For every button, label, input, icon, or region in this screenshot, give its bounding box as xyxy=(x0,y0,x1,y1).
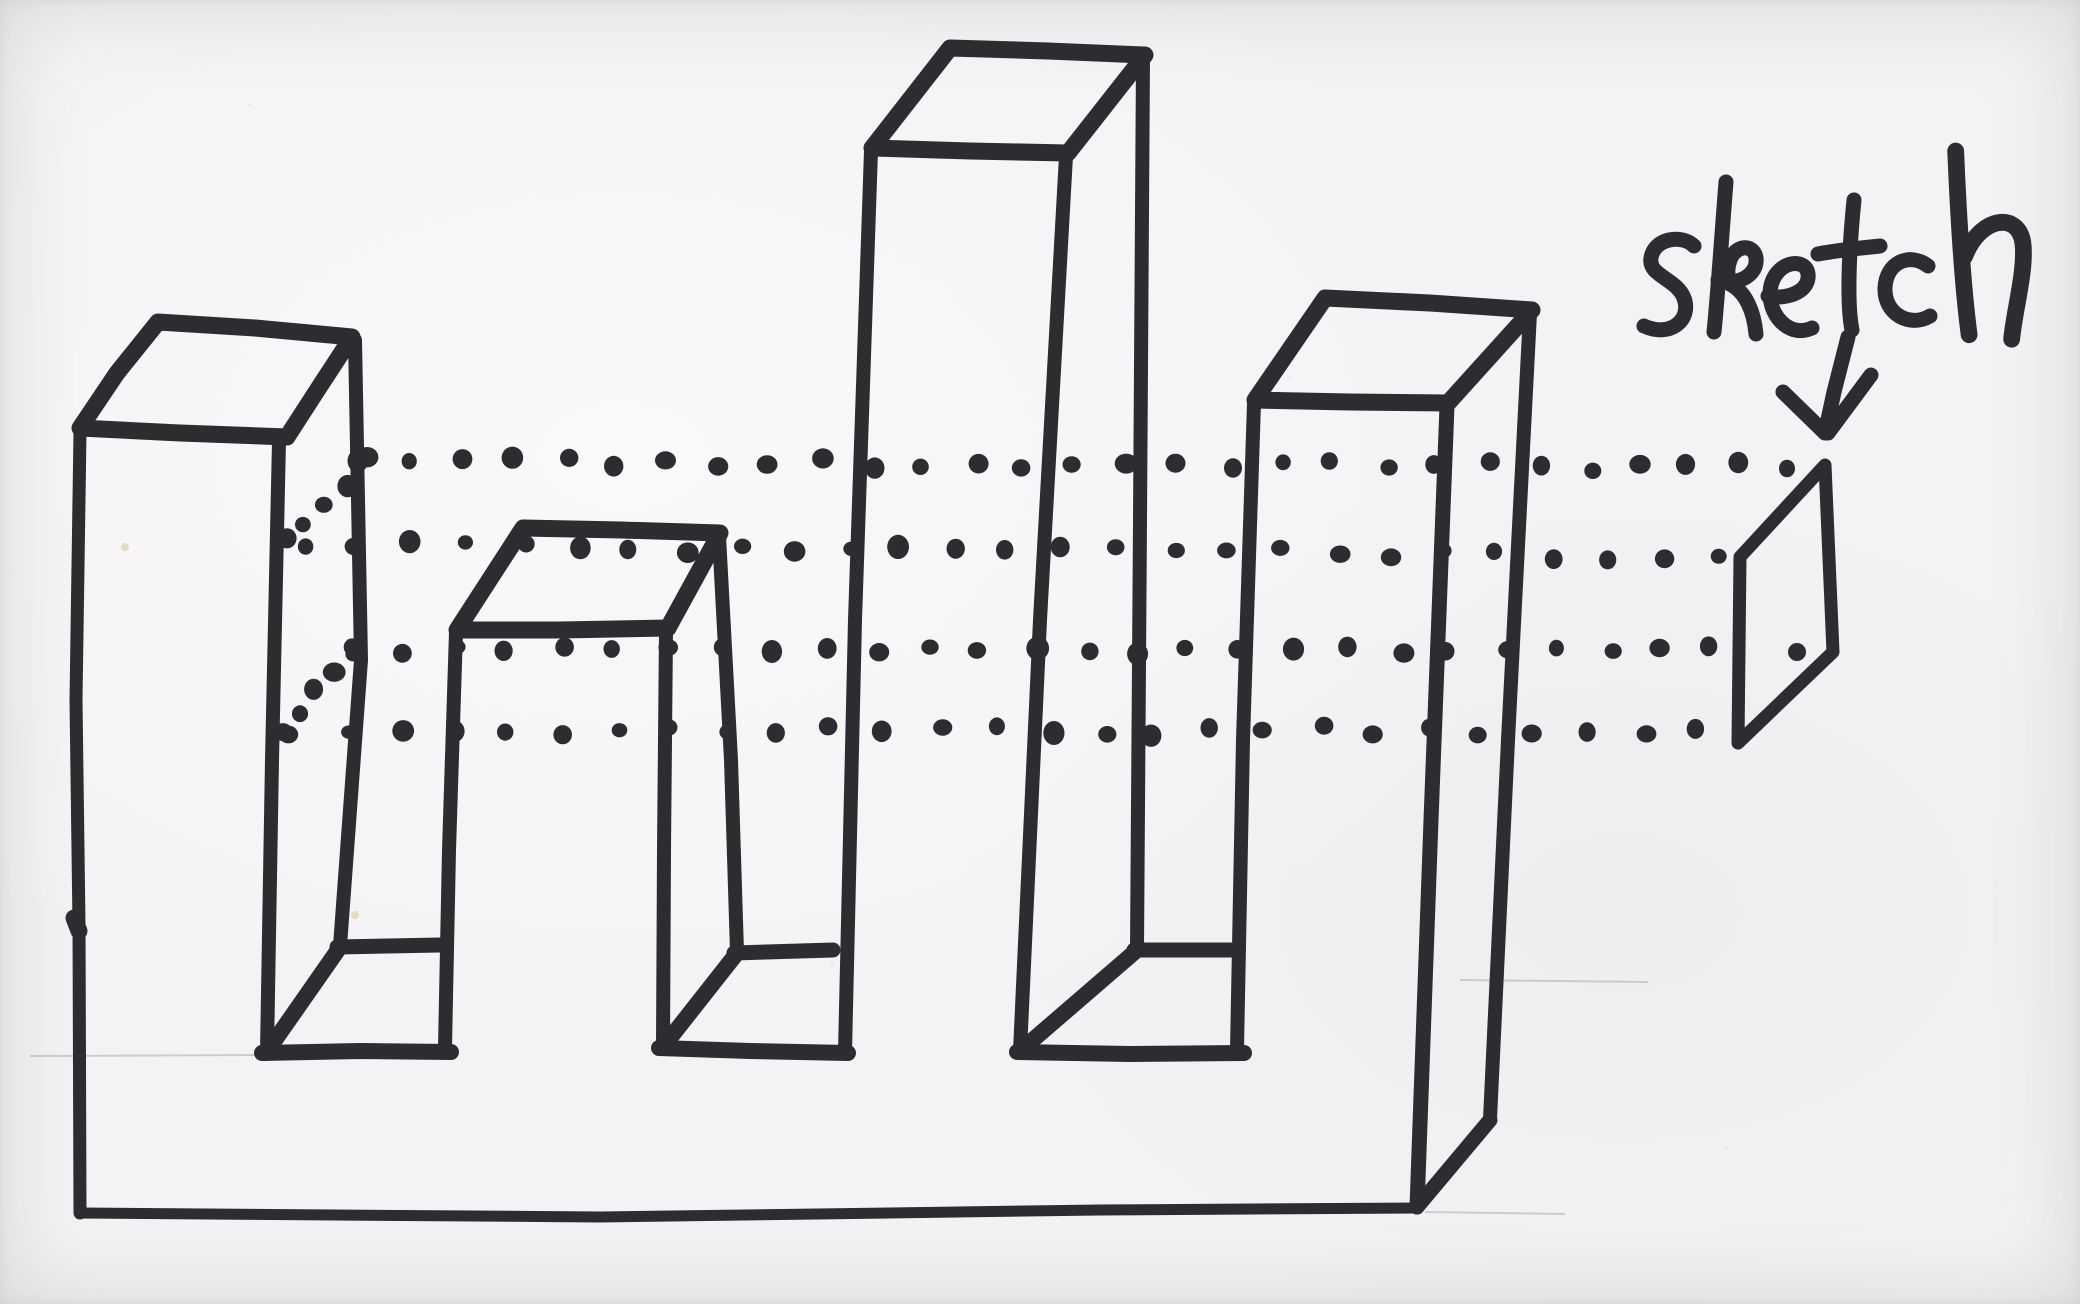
projection-dot xyxy=(677,542,699,563)
projection-dot xyxy=(969,454,989,474)
projection-dot xyxy=(1217,543,1236,559)
projection-dot xyxy=(658,639,678,656)
projection-dot xyxy=(767,723,785,743)
projection-dot xyxy=(1629,455,1650,474)
label-letter-k xyxy=(1714,182,1756,334)
projection-dot xyxy=(947,539,965,559)
label-letter-h xyxy=(1956,151,2024,339)
projection-dot xyxy=(989,717,1005,735)
projection-dot xyxy=(1363,725,1383,743)
projection-dot xyxy=(1166,454,1186,473)
projection-dot xyxy=(1315,717,1334,735)
projection-dot xyxy=(1283,638,1304,661)
projection-dot xyxy=(912,459,929,475)
projection-dot xyxy=(784,541,806,562)
projection-dot xyxy=(604,456,623,477)
projection-dot xyxy=(570,537,591,560)
projection-dot xyxy=(453,449,473,469)
projection-dot xyxy=(1321,452,1338,470)
projection-dot xyxy=(819,717,838,735)
projection-dot xyxy=(719,724,735,739)
projection-dot xyxy=(1115,454,1138,474)
projection-dot xyxy=(1051,537,1070,558)
projection-dot xyxy=(495,641,513,661)
projection-dot xyxy=(1141,725,1162,747)
projection-dot xyxy=(1330,546,1351,563)
pencil-guide-2 xyxy=(1425,1212,1565,1214)
sketch-profile-face xyxy=(1738,465,1833,743)
projection-dot xyxy=(392,720,414,742)
projection-dot xyxy=(887,535,909,559)
letter-stroke xyxy=(1768,264,1812,331)
valley-2-floor-back-edge xyxy=(734,950,833,953)
marker-strokes xyxy=(74,48,1871,1217)
letter-stroke xyxy=(1730,284,1756,334)
tower-1-front-right-edge xyxy=(267,441,279,1052)
tower-1-top-face xyxy=(80,322,352,437)
projection-dot xyxy=(1176,640,1193,656)
projection-dot xyxy=(762,640,782,663)
projection-dot xyxy=(1425,455,1442,474)
projection-dot xyxy=(604,640,620,658)
pencil-guide-1 xyxy=(30,1055,255,1056)
projection-dot xyxy=(1127,642,1148,665)
projection-dot xyxy=(1649,639,1669,657)
projection-dot xyxy=(1584,463,1601,479)
sketch-label xyxy=(1644,151,2023,339)
projection-dot xyxy=(1380,459,1397,475)
projection-dot xyxy=(1201,718,1218,738)
letter-stroke xyxy=(1644,239,1694,330)
projection-dot xyxy=(757,455,778,474)
projection-dot xyxy=(1026,637,1049,660)
projection-dot xyxy=(1599,550,1616,569)
tower-4-back-right-edge xyxy=(1490,313,1530,1119)
projection-dot xyxy=(619,540,636,560)
projection-dot xyxy=(933,719,952,735)
projection-dot xyxy=(1098,726,1116,743)
projection-dot xyxy=(553,725,572,744)
projection-dot xyxy=(1676,454,1695,475)
projection-dot xyxy=(295,517,311,532)
valley-3-floor-front-edge xyxy=(1017,1052,1244,1054)
paper-speck xyxy=(351,911,359,919)
projection-dot xyxy=(1107,539,1125,555)
projection-dot xyxy=(1605,643,1622,659)
projection-dot xyxy=(1168,543,1185,558)
base-bottom-right-diagonal xyxy=(1417,1120,1490,1207)
projection-dot xyxy=(1421,719,1437,737)
tower-1-left-edge xyxy=(76,432,80,1213)
tower-4-front-right-edge xyxy=(1417,406,1447,1207)
tower-3-back-right-edge xyxy=(1137,58,1143,949)
projection-dot xyxy=(708,457,728,476)
tower-3-front-right-edge xyxy=(1020,156,1066,1051)
letter-stroke xyxy=(1885,260,1930,321)
pencil-guide-3 xyxy=(1460,980,1648,982)
projection-dot xyxy=(872,721,892,743)
ink-blob-left-edge xyxy=(74,918,79,931)
projection-dot xyxy=(1700,636,1717,656)
projection-dot xyxy=(323,663,346,682)
paper-background: sketch xyxy=(0,0,2080,1304)
projection-dot xyxy=(277,528,296,548)
projection-dot xyxy=(402,453,417,469)
projection-dot xyxy=(399,530,421,553)
projection-dot xyxy=(1549,640,1564,657)
projection-dot xyxy=(1393,643,1414,662)
label-letter-t xyxy=(1818,200,1880,330)
projection-dot xyxy=(734,539,751,554)
projection-dot xyxy=(1081,643,1098,661)
projection-dot xyxy=(1435,543,1451,558)
label-letter-c xyxy=(1885,260,1930,321)
valley-2-floor-front-edge xyxy=(659,1048,848,1053)
projection-dot xyxy=(1522,725,1542,743)
projection-dot xyxy=(968,642,986,659)
valley-1-floor-back-edge xyxy=(337,945,440,947)
projection-dot xyxy=(921,640,938,655)
valley-2-floor-left-diagonal xyxy=(663,953,737,1047)
label-letter-s xyxy=(1644,239,1694,330)
projection-dot xyxy=(1545,549,1563,569)
projection-dot xyxy=(843,542,859,556)
letter-stroke xyxy=(1849,200,1854,330)
projection-dot xyxy=(1469,727,1487,744)
projection-dot xyxy=(1253,722,1272,739)
projection-dot xyxy=(660,719,678,735)
valley-1-floor-front-edge xyxy=(262,1051,451,1053)
projection-dot xyxy=(446,721,465,742)
projection-dot xyxy=(337,475,357,497)
tower-3-top-face xyxy=(872,48,1145,153)
projection-dot xyxy=(1637,725,1657,742)
projection-dot xyxy=(1498,641,1518,659)
projection-dot xyxy=(714,639,730,656)
valley-3-floor-left-diagonal xyxy=(1020,950,1137,1051)
projection-dot xyxy=(1579,722,1596,742)
projection-dot xyxy=(1728,452,1748,473)
projection-dot xyxy=(348,449,369,472)
projection-dot xyxy=(273,723,292,741)
projection-dot xyxy=(560,449,578,467)
projection-dot xyxy=(1711,549,1727,564)
projection-dot xyxy=(341,726,356,739)
projection-dot xyxy=(1228,640,1246,659)
projection-dot xyxy=(497,724,513,741)
projection-dot xyxy=(812,448,834,468)
projection-dot xyxy=(1436,642,1454,661)
projection-dot xyxy=(555,638,574,657)
projection-dot xyxy=(502,447,524,469)
projection-dot xyxy=(1779,460,1795,478)
dot-inside-profile xyxy=(1788,643,1806,661)
projection-dot xyxy=(1063,456,1081,473)
label-letter-e xyxy=(1768,264,1812,331)
tower-2-front-left-edge xyxy=(445,632,456,1047)
projection-dot xyxy=(1381,548,1401,566)
projection-dot xyxy=(345,538,363,555)
projection-dot xyxy=(292,705,308,722)
projection-dotted-line-1 xyxy=(356,447,1795,479)
projection-dot xyxy=(1275,454,1290,470)
projection-dot xyxy=(450,640,466,654)
projection-dot xyxy=(996,540,1013,560)
projection-dot xyxy=(1012,459,1031,476)
projection-dot xyxy=(1687,719,1704,739)
projection-dot xyxy=(1338,637,1356,658)
projection-dot xyxy=(393,644,412,663)
projection-dot xyxy=(1655,549,1674,568)
base-bottom-front-edge xyxy=(80,1208,1417,1217)
letter-stroke xyxy=(1818,246,1880,254)
tower-4-top-face xyxy=(1255,298,1532,403)
tower-2-front-right-edge xyxy=(663,630,666,1046)
valley-1-floor-left-diagonal xyxy=(266,947,340,1053)
sketch-figure xyxy=(0,0,2080,1304)
projection-dot xyxy=(865,457,885,478)
projection-dot xyxy=(612,723,628,737)
arrow-barb-left xyxy=(1783,392,1825,433)
projection-dotted-line-4 xyxy=(279,717,1705,747)
projection-dot xyxy=(458,535,473,549)
projection-dot xyxy=(1271,540,1289,556)
projection-dot xyxy=(818,638,837,659)
projection-dot xyxy=(315,497,333,513)
projection-dot xyxy=(1481,452,1500,471)
tower-2-back-right-edge xyxy=(719,536,737,952)
paper-speck xyxy=(121,543,129,551)
projection-dot xyxy=(1486,543,1502,560)
tower-3-front-left-edge xyxy=(845,151,871,1052)
projection-dot xyxy=(304,679,323,700)
projection-dot xyxy=(869,643,889,661)
projection-dot xyxy=(655,451,676,469)
projection-dot xyxy=(1533,456,1550,476)
projection-dot xyxy=(345,647,361,661)
projection-dot xyxy=(518,536,535,553)
projection-dot xyxy=(298,538,313,554)
projection-dot xyxy=(1043,721,1064,745)
projection-dot xyxy=(1224,458,1242,478)
